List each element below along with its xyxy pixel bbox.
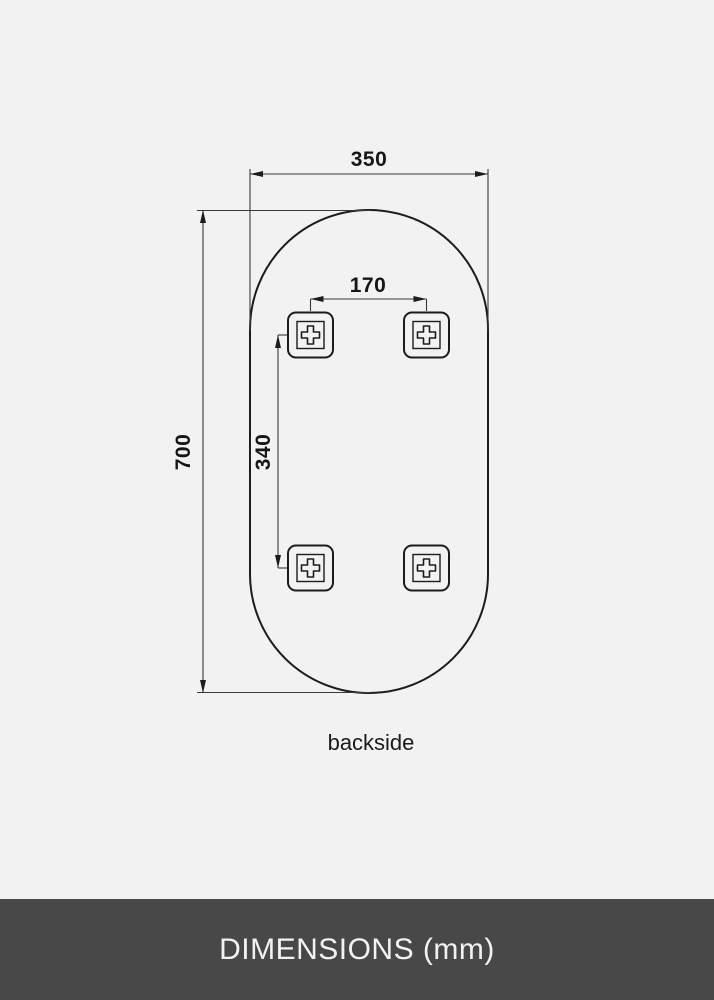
arrowhead-down-icon bbox=[275, 555, 281, 568]
arrowhead-right-icon bbox=[414, 296, 427, 302]
arrowhead-up-icon bbox=[275, 335, 281, 348]
bracket-outer bbox=[404, 313, 449, 358]
arrowhead-left-icon bbox=[250, 171, 263, 177]
footer-bar: DIMENSIONS (mm) bbox=[0, 899, 714, 1000]
mount-bracket-bottom-left bbox=[288, 546, 333, 591]
plus-screw-icon bbox=[418, 326, 436, 344]
arrowhead-up-icon bbox=[200, 210, 206, 223]
dimension-height-700 bbox=[197, 210, 371, 693]
dimension-brackets-340 bbox=[278, 335, 288, 568]
arrowhead-down-icon bbox=[200, 680, 206, 693]
dimension-brackets-170 bbox=[311, 299, 427, 311]
footer-title: DIMENSIONS (mm) bbox=[219, 933, 495, 967]
technical-drawing-svg bbox=[0, 0, 714, 899]
dim-label-bracket-spacing-170: 170 bbox=[350, 274, 387, 298]
dim-label-width-350: 350 bbox=[351, 148, 388, 172]
bracket-outer bbox=[288, 546, 333, 591]
backside-caption: backside bbox=[328, 730, 415, 756]
dim-label-height-700: 700 bbox=[172, 434, 196, 471]
dimension-width-350 bbox=[250, 169, 488, 331]
mount-bracket-bottom-right bbox=[404, 546, 449, 591]
bracket-outer bbox=[288, 313, 333, 358]
drawing-stage: 350 170 700 340 backside bbox=[0, 0, 714, 899]
plus-screw-icon bbox=[418, 559, 436, 577]
dim-label-bracket-spacing-340: 340 bbox=[252, 434, 276, 471]
dimension-drawing-page: 350 170 700 340 backside DIMENSIONS (mm) bbox=[0, 0, 714, 1000]
plus-screw-icon bbox=[302, 559, 320, 577]
mount-bracket-top-right bbox=[404, 313, 449, 358]
mount-bracket-top-left bbox=[288, 313, 333, 358]
bracket-outer bbox=[404, 546, 449, 591]
arrowhead-right-icon bbox=[475, 171, 488, 177]
plus-screw-icon bbox=[302, 326, 320, 344]
arrowhead-left-icon bbox=[311, 296, 324, 302]
